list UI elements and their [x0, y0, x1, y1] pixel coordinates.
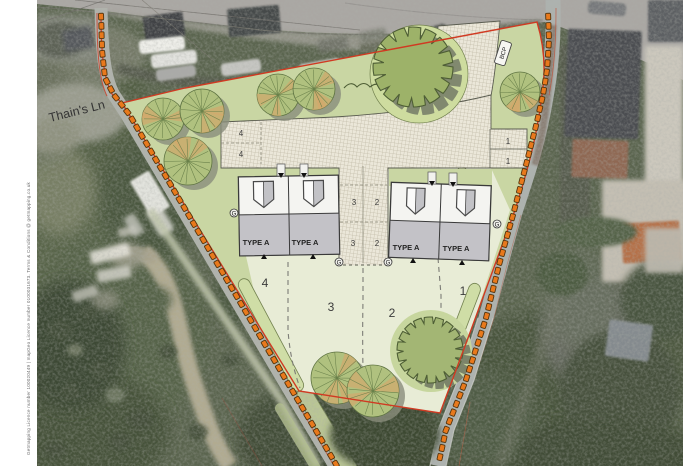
- svg-text:G: G: [337, 261, 342, 267]
- svg-text:G: G: [495, 223, 500, 229]
- svg-text:G: G: [386, 261, 391, 267]
- svg-text:3: 3: [352, 198, 357, 207]
- svg-text:2: 2: [389, 306, 396, 320]
- svg-text:4: 4: [262, 276, 269, 290]
- svg-text:1: 1: [506, 137, 511, 146]
- svg-text:TYPE A: TYPE A: [292, 238, 319, 247]
- svg-text:2: 2: [375, 239, 380, 248]
- svg-text:1: 1: [506, 157, 511, 166]
- svg-text:3: 3: [328, 300, 335, 314]
- svg-text:TYPE A: TYPE A: [393, 243, 420, 252]
- svg-text:1: 1: [460, 284, 467, 298]
- svg-text:TYPE A: TYPE A: [243, 238, 270, 247]
- svg-text:3: 3: [351, 239, 356, 248]
- svg-text:G: G: [232, 212, 237, 218]
- svg-text:TYPE A: TYPE A: [443, 244, 470, 253]
- svg-text:2: 2: [375, 198, 380, 207]
- svg-text:4: 4: [239, 129, 244, 138]
- svg-text:4: 4: [239, 150, 244, 159]
